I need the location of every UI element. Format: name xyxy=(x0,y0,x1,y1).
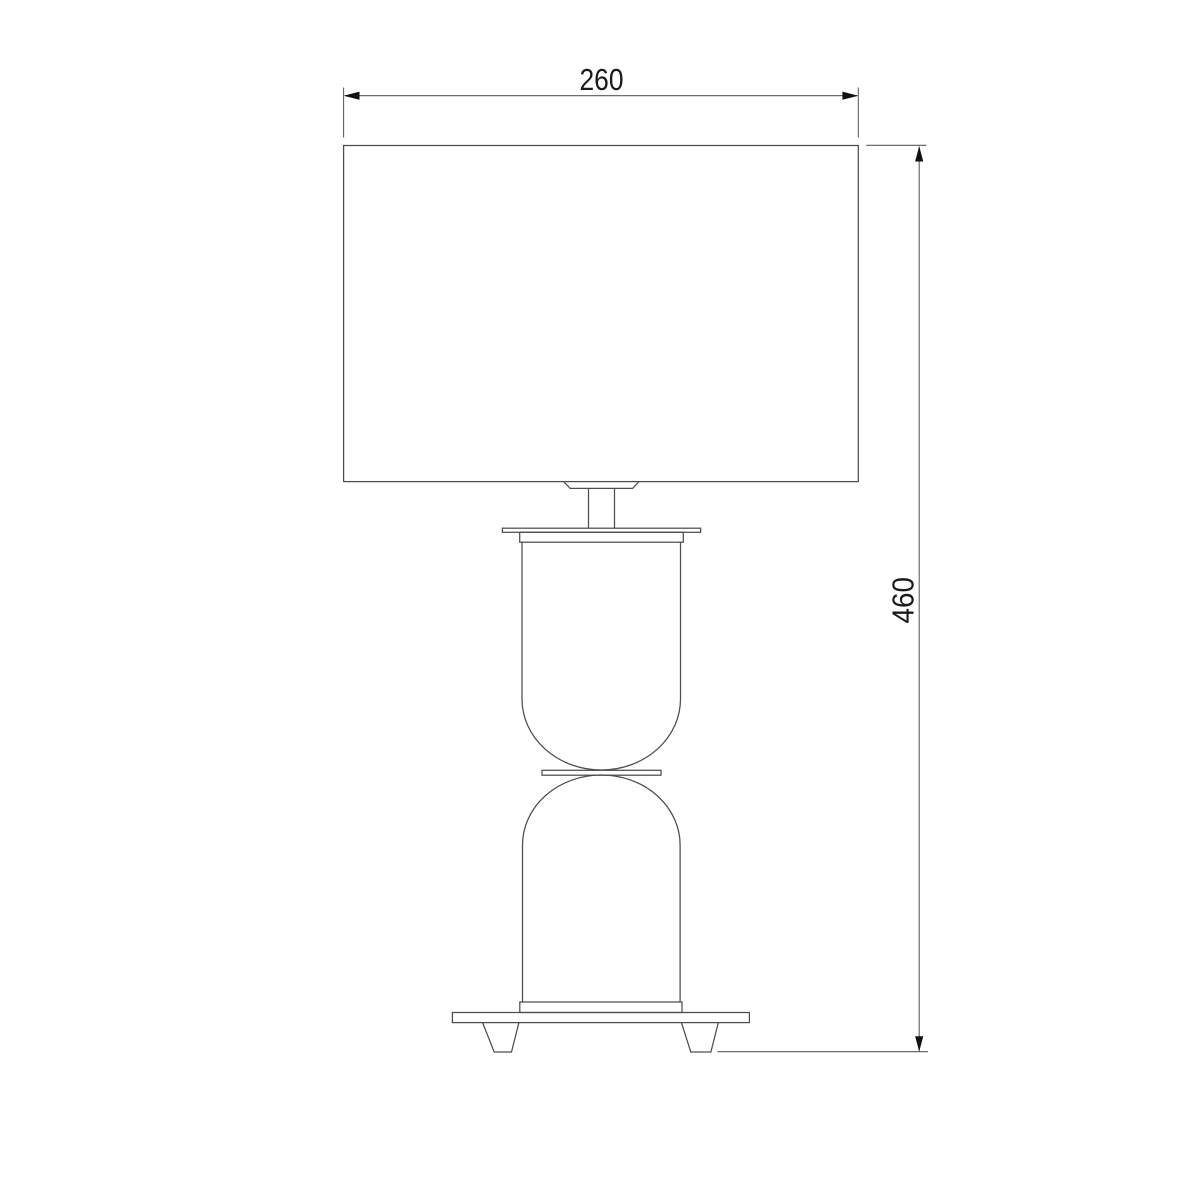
svg-text:460: 460 xyxy=(887,577,921,624)
svg-text:260: 260 xyxy=(580,63,624,97)
